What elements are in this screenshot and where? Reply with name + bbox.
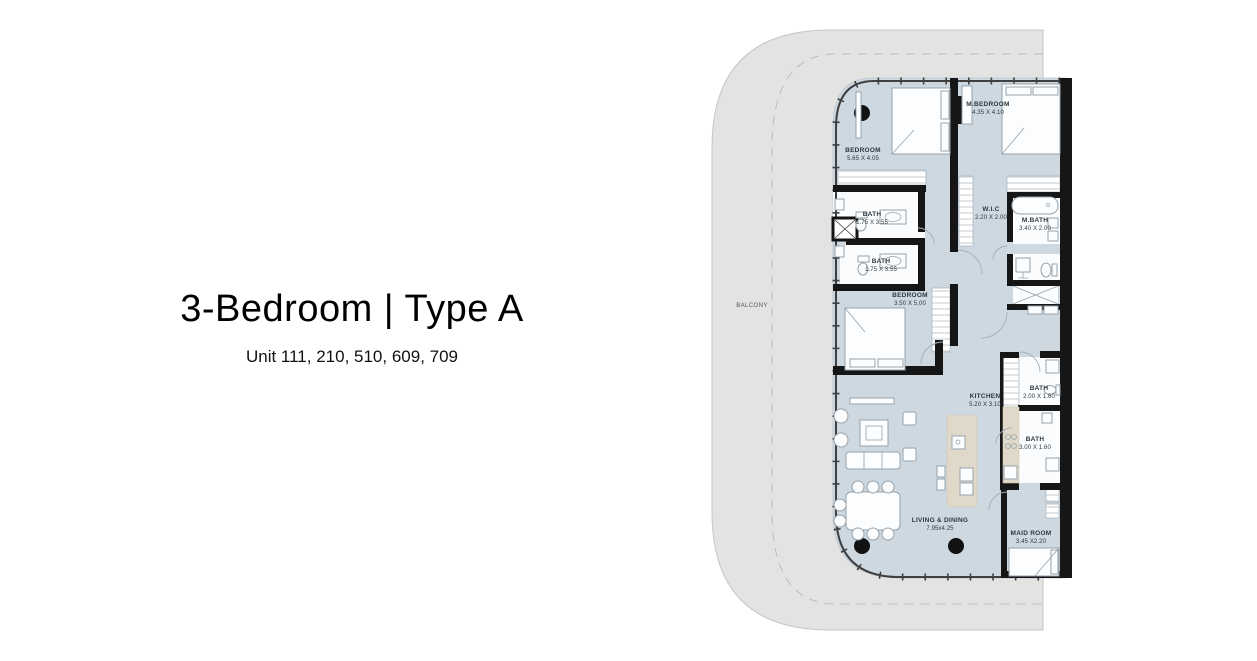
room-dims-bath4: 3.00 X 1.60: [1019, 445, 1051, 451]
room-label-bath1: BATH: [863, 211, 882, 218]
room-label-bedroom2: BEDROOM: [892, 292, 928, 299]
room-label-bath4: BATH: [1026, 436, 1045, 443]
room-dims-bedroom2: 3.50 X 5.00: [894, 301, 926, 307]
room-label-maid-room: MAID ROOM: [1011, 530, 1052, 537]
room-dims-living-dining: 7.95x4.25: [926, 526, 954, 532]
bed-maid: [1009, 548, 1059, 576]
bed-bedroom2: [845, 308, 905, 370]
room-dims-master-bath: 3.40 X 2.00: [1019, 226, 1051, 232]
shaft-box: [833, 218, 857, 240]
room-dims-bath1: 1.75 X 3.55: [856, 220, 888, 226]
room-dims-wic: 2.20 X 2.00: [975, 215, 1007, 221]
page: 3-Bedroom | Type A Unit 111, 210, 510, 6…: [0, 0, 1257, 661]
room-dims-master-bedroom: 4.35 X 4.10: [972, 110, 1004, 116]
room-dims-bath2: 1.75 X 3.55: [865, 267, 897, 273]
room-label-bath2: BATH: [872, 258, 891, 265]
column-icon: [854, 538, 870, 554]
floor-plan: BALCONY: [0, 0, 1257, 661]
room-label-master-bedroom: M.BEDROOM: [966, 101, 1009, 108]
room-label-master-bath: M.BATH: [1022, 217, 1048, 224]
kitchen-counter: [1003, 407, 1019, 483]
balcony-label: BALCONY: [736, 303, 767, 309]
room-label-bedroom1: BEDROOM: [845, 147, 881, 154]
room-dims-kitchen: 5.20 X 3.10: [969, 402, 1001, 408]
room-label-bath3: BATH: [1030, 385, 1049, 392]
room-label-kitchen: KITCHEN: [970, 393, 1001, 400]
column-icon: [948, 538, 964, 554]
room-label-living-dining: LIVING & DINING: [912, 517, 968, 524]
room-dims-maid-room: 3.45 X2.20: [1016, 539, 1047, 545]
room-dims-bedroom1: 5.65 X 4.05: [847, 156, 879, 162]
room-label-wic: W.I.C: [982, 206, 999, 213]
room-dims-bath3: 2.00 X 1.60: [1023, 394, 1055, 400]
